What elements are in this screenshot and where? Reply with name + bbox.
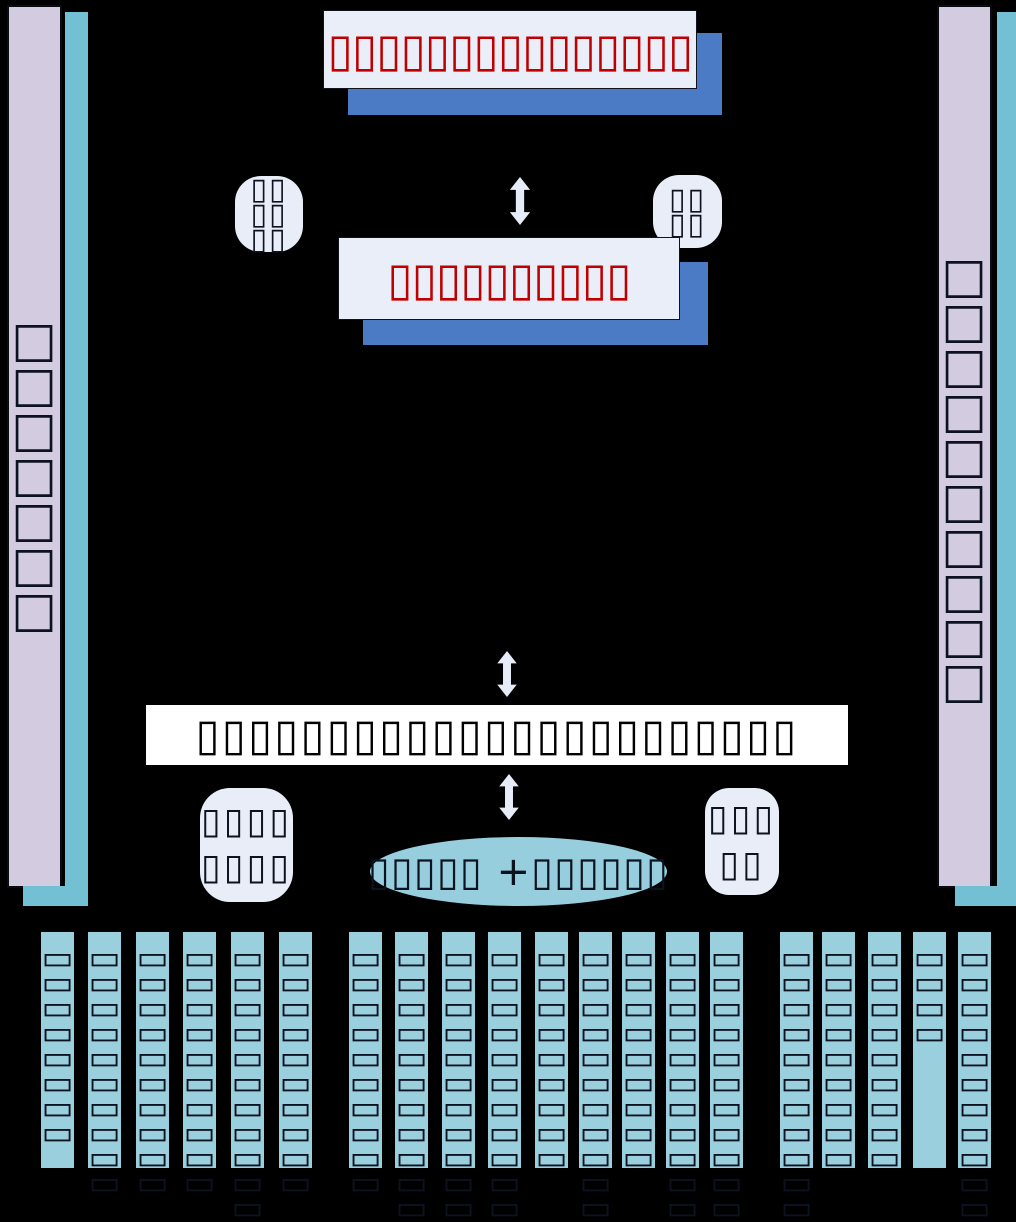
bottom-bar-label: ▭▭▭▭▭▭▭▭▭▭▭ [392, 938, 432, 1213]
bottom-bar: ▭▭▭▭ [913, 932, 946, 1168]
bottom-left-badge: ▯▯▯▯ ▯▯▯▯ [200, 788, 293, 902]
bottom-bar-label: ▭▭▭▭▭▭▭▭▭▭ [346, 938, 386, 1188]
bottom-bar-label: ▭▭▭▭▭▭▭▭▭▭▭▭ [439, 938, 479, 1222]
bottom-bar: ▭▭▭▭▭▭▭▭▭ [822, 932, 855, 1168]
bottom-bar: ▭▭▭▭▭▭▭▭▭▭▭ [780, 932, 813, 1168]
main-title-label: ▯▯▯▯▯▯▯▯▯▯▯▯▯▯▯ [328, 23, 693, 77]
process-ellipse: ▯▯▯▯▯ +▯▯▯▯▯▯ [370, 837, 667, 906]
main-title-box: ▯▯▯▯▯▯▯▯▯▯▯▯▯▯▯ [323, 10, 697, 89]
bottom-bar: ▭▭▭▭▭▭▭▭ [41, 932, 74, 1168]
bottom-bar-label: ▭▭▭▭▭▭▭▭▭ [819, 938, 859, 1163]
bottom-bar: ▭▭▭▭▭▭▭▭▭▭ [279, 932, 312, 1168]
bottom-right-badge: ▯▯▯ ▯▯ [705, 788, 779, 895]
bottom-bar: ▭▭▭▭▭▭▭▭▭▭▭ [395, 932, 428, 1168]
subtitle-box: ▯▯▯▯▯▯▯▯▯▯ [338, 237, 680, 320]
bottom-bar: ▭▭▭▭▭▭▭▭▭▭ [183, 932, 216, 1168]
bottom-bar-label: ▭▭▭▭▭▭▭▭▭ [532, 938, 572, 1163]
right-pillar-label: □□□□□□□□□□ [936, 248, 992, 698]
bottom-bar: ▭▭▭▭▭▭▭▭▭▭▭▭ [442, 932, 475, 1168]
bottom-bar: ▭▭▭▭▭▭▭▭▭▭▭▭▭ [579, 932, 612, 1168]
bottom-bar-label: ▭▭▭▭▭▭▭▭▭▭▭▭▭ [228, 938, 268, 1222]
process-ellipse-label: ▯▯▯▯▯ +▯▯▯▯▯▯ [368, 849, 669, 895]
top-right-badge-line2: ▯▯ [669, 212, 706, 237]
right-teal-bar [997, 12, 1016, 905]
bottom-bar-label: ▭▭▭▭▭▭▭▭▭ [865, 938, 905, 1163]
bottom-bar: ▭▭▭▭▭▭▭▭▭ [622, 932, 655, 1168]
double-arrow-icon-top [508, 176, 532, 226]
bottom-bar-label: ▭▭▭▭▭▭▭▭▭▭▭▭ [485, 938, 525, 1222]
bottom-bar-label: ▭▭▭▭▭▭▭▭▭▭ [85, 938, 125, 1188]
bottom-bar-label: ▭▭▭▭▭▭▭▭▭▭ [276, 938, 316, 1188]
bottom-bar: ▭▭▭▭▭▭▭▭▭▭ [88, 932, 121, 1168]
bottom-bar-label: ▭▭▭▭ [910, 938, 950, 1038]
bottom-bar: ▭▭▭▭▭▭▭▭▭▭▭▭▭ [231, 932, 264, 1168]
bottom-bar-label: ▭▭▭▭▭▭▭▭▭▭▭ [707, 938, 747, 1213]
bottom-bar: ▭▭▭▭▭▭▭▭▭▭ [349, 932, 382, 1168]
bottom-right-badge-line2: ▯▯ [719, 842, 765, 888]
bottom-bar: ▭▭▭▭▭▭▭▭▭▭▭▭ [488, 932, 521, 1168]
bottom-right-badge-line1: ▯▯▯ [708, 796, 776, 842]
top-left-badge-line3: ▯▯ [250, 227, 287, 252]
bottom-bar-label: ▭▭▭▭▭▭▭▭▭▭ [180, 938, 220, 1188]
double-arrow-icon-middle [495, 651, 519, 697]
left-pillar-label: □□□□□□□ [6, 312, 62, 627]
bottom-bar-label: ▭▭▭▭▭▭▭▭▭ [619, 938, 659, 1163]
central-bus-bar: ▯▯▯▯▯▯▯▯▯▯▯▯▯▯▯▯▯▯▯▯▯▯▯ [146, 705, 848, 765]
bottom-bar: ▭▭▭▭▭▭▭▭▭▭▭▭ [958, 932, 991, 1168]
left-teal-bar [65, 12, 88, 905]
bottom-bar-label: ▭▭▭▭▭▭▭▭▭▭▭▭ [955, 938, 995, 1222]
double-arrow-icon-bottom [497, 774, 521, 820]
bottom-bar: ▭▭▭▭▭▭▭▭▭▭▭ [710, 932, 743, 1168]
bottom-bar: ▭▭▭▭▭▭▭▭▭▭ [136, 932, 169, 1168]
bottom-bar: ▭▭▭▭▭▭▭▭▭ [868, 932, 901, 1168]
bottom-left-badge-line1: ▯▯▯▯ [201, 799, 292, 845]
bottom-bar-label: ▭▭▭▭▭▭▭▭▭▭ [133, 938, 173, 1188]
bottom-bar-label: ▭▭▭▭▭▭▭▭▭▭▭ [663, 938, 703, 1213]
bottom-bar-label: ▭▭▭▭▭▭▭▭▭▭▭▭▭ [576, 938, 616, 1222]
central-bus-label: ▯▯▯▯▯▯▯▯▯▯▯▯▯▯▯▯▯▯▯▯▯▯▯ [196, 710, 799, 761]
diagram-canvas: □□□□□□□ □□□□□□□□□□ ▯▯▯▯▯▯▯▯▯▯▯▯▯▯▯ ▯▯ ▯▯… [0, 0, 1016, 1222]
bottom-bar: ▭▭▭▭▭▭▭▭▭▭▭ [666, 932, 699, 1168]
left-teal-foot [23, 886, 88, 906]
bottom-bar-label: ▭▭▭▭▭▭▭▭ [38, 938, 78, 1138]
top-left-badge: ▯▯ ▯▯ ▯▯ [235, 176, 303, 252]
subtitle-label: ▯▯▯▯▯▯▯▯▯▯ [387, 252, 630, 306]
right-teal-foot [955, 886, 1016, 906]
bottom-bar-label: ▭▭▭▭▭▭▭▭▭▭▭ [777, 938, 817, 1213]
bottom-bar: ▭▭▭▭▭▭▭▭▭ [535, 932, 568, 1168]
bottom-left-badge-line2: ▯▯▯▯ [201, 845, 292, 891]
